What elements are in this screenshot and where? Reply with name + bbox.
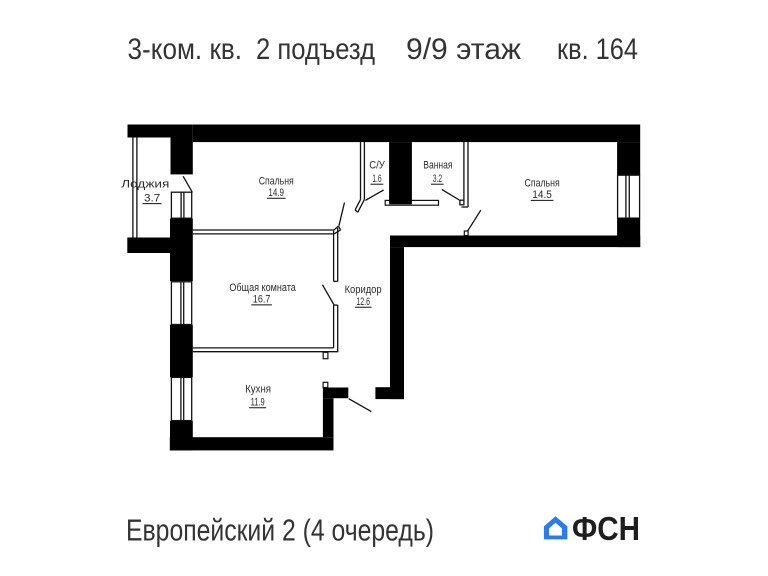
svg-text:3-ком. кв.: 3-ком. кв. <box>128 33 243 66</box>
svg-text:3.2: 3.2 <box>433 173 442 185</box>
svg-text:9/9 этаж: 9/9 этаж <box>406 33 521 66</box>
svg-text:кв. 164: кв. 164 <box>557 33 638 66</box>
svg-text:12.6: 12.6 <box>356 296 370 308</box>
svg-text:С/У: С/У <box>369 160 385 172</box>
svg-text:1.6: 1.6 <box>372 173 381 185</box>
svg-text:14.5: 14.5 <box>532 189 552 201</box>
svg-text:16.7: 16.7 <box>253 294 271 306</box>
svg-text:Кухня: Кухня <box>245 383 271 395</box>
svg-text:14.9: 14.9 <box>268 187 284 199</box>
svg-text:Спальня: Спальня <box>525 177 560 189</box>
svg-text:Коридор: Коридор <box>345 284 382 296</box>
svg-text:3.7: 3.7 <box>144 192 160 204</box>
svg-text:Спальня: Спальня <box>259 175 294 187</box>
svg-text:Лоджия: Лоджия <box>121 179 169 191</box>
svg-text:2 подъезд: 2 подъезд <box>256 33 375 66</box>
svg-text:Общая комната: Общая комната <box>229 282 296 294</box>
svg-text:Ванная: Ванная <box>423 160 452 172</box>
svg-text:ФСН: ФСН <box>572 510 640 547</box>
svg-text:Европейский 2 (4 очередь): Европейский 2 (4 очередь) <box>126 513 434 548</box>
svg-text:11.9: 11.9 <box>251 396 265 408</box>
